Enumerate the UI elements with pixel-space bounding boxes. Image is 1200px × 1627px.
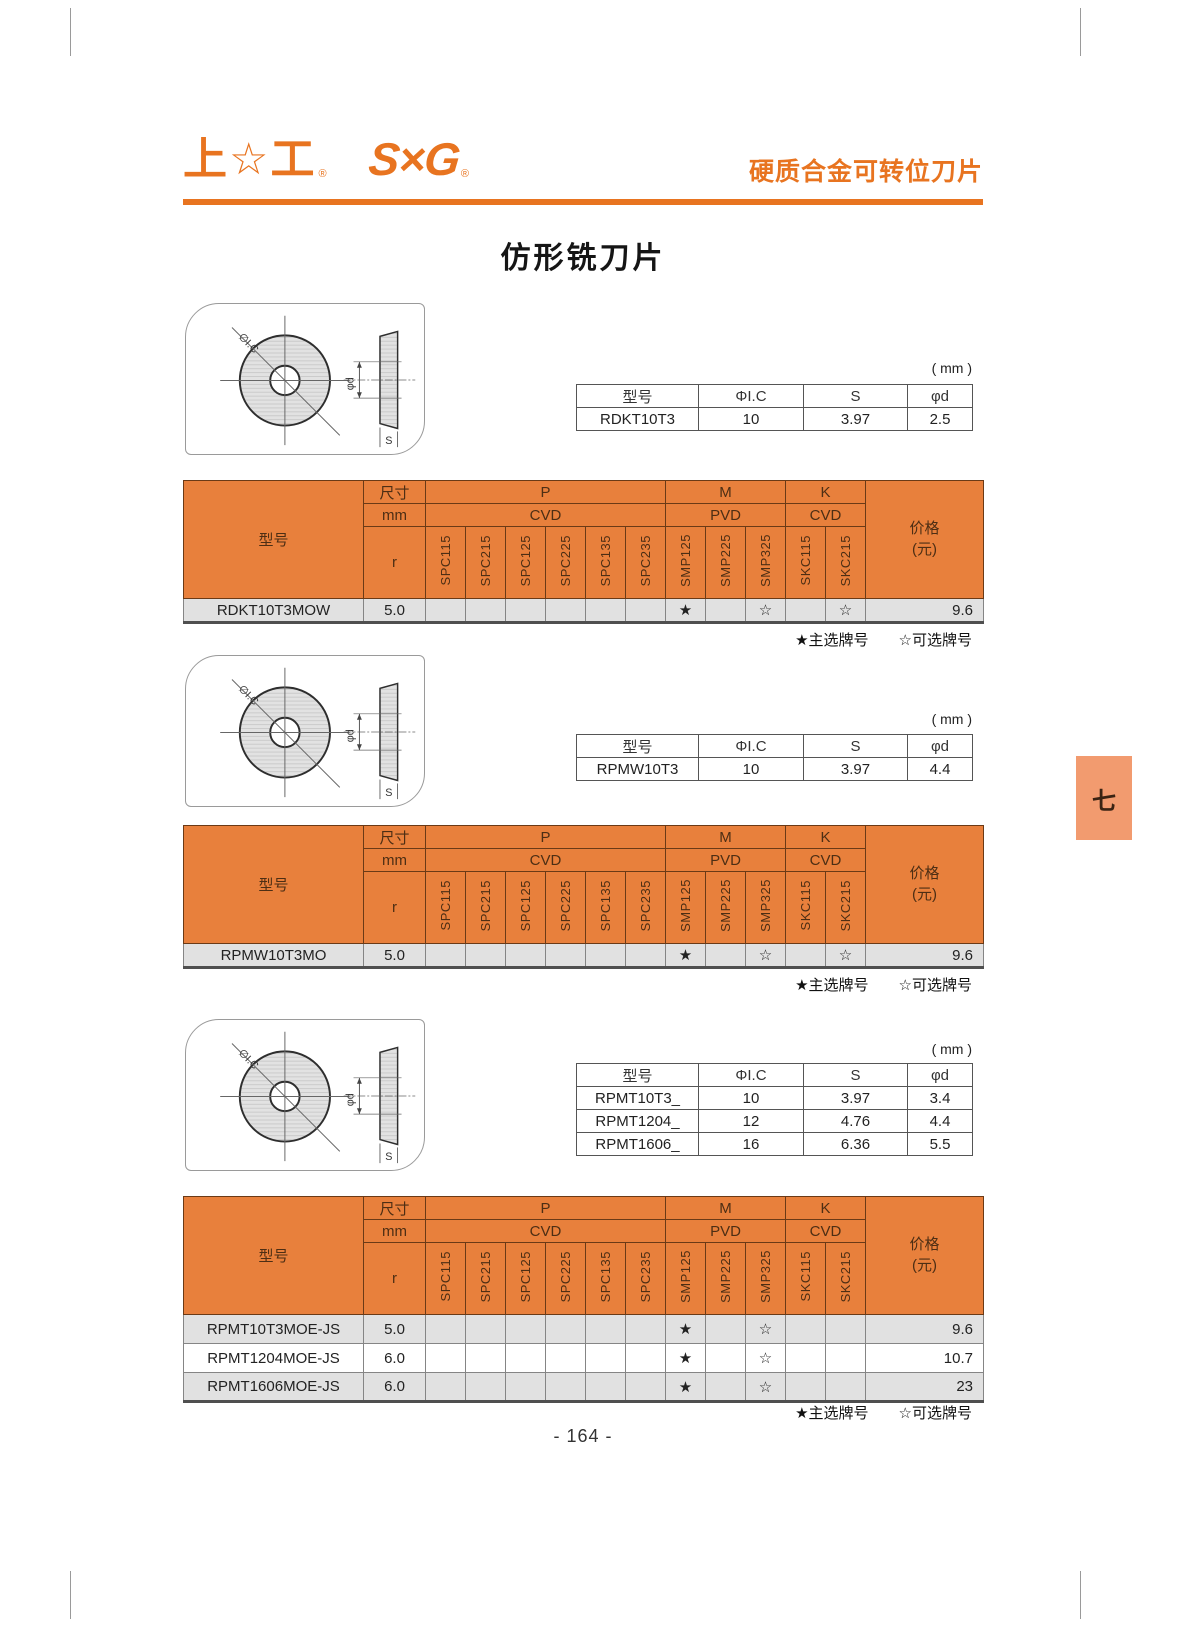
grade-label: SPC225 — [558, 1251, 573, 1302]
col-price-header: 价格 (元) — [866, 826, 984, 944]
price-cell: 10.7 — [866, 1344, 984, 1373]
grade-legend: ★主选牌号☆可选牌号 — [572, 629, 972, 650]
sg-logo: S×G — [366, 136, 461, 182]
table-row: RPMW10T3MO 5.0 ★ ☆ ☆ 9.6 — [184, 944, 984, 968]
spec-col-ic: ΦI.C — [699, 1064, 804, 1087]
coating-cvd-header: CVD — [426, 849, 666, 872]
spec-row: RPMT1606_ 16 6.36 5.5 — [577, 1133, 973, 1156]
spec-col-model: 型号 — [577, 385, 699, 408]
coating-pvd-header: PVD — [666, 504, 786, 527]
grade-label: SMP325 — [758, 879, 773, 932]
catalog-page: 上☆工 ® S×G ® 硬质合金可转位刀片 仿形铣刀片 ∅I.C φd S ( — [0, 0, 1200, 1627]
coating-cvd-header: CVD — [426, 1220, 666, 1243]
model-cell: RPMT10T3MOE-JS — [184, 1315, 364, 1344]
col-price-header: 价格 (元) — [866, 481, 984, 599]
radius-header: r — [364, 1243, 426, 1315]
grade-label: SMP225 — [718, 879, 733, 932]
grade-label: SKC215 — [838, 1251, 853, 1302]
radius-cell: 5.0 — [364, 1315, 426, 1344]
size-unit-header: mm — [364, 504, 426, 527]
page-title: 仿形铣刀片 — [183, 233, 983, 277]
model-cell: RPMT1204MOE-JS — [184, 1344, 364, 1373]
table-row: RPMT1606MOE-JS 6.0 ★ ☆ 23 — [184, 1373, 984, 1402]
grade-label: SKC115 — [798, 880, 813, 930]
grade-label: SPC115 — [438, 535, 453, 585]
size-unit-header: mm — [364, 1220, 426, 1243]
legend-optional: ☆可选牌号 — [899, 977, 972, 994]
price-cell: 9.6 — [866, 944, 984, 968]
brand-logos: 上☆工 ® S×G ® — [183, 136, 469, 182]
table-row: RDKT10T3MOW 5.0 ★ ☆ ☆ 9.6 — [184, 599, 984, 623]
unit-label: ( mm ) — [780, 360, 972, 376]
grade-label: SMP225 — [718, 534, 733, 587]
spec-col-s: S — [804, 385, 908, 408]
size-unit-header: mm — [364, 849, 426, 872]
spec-col-s: S — [804, 735, 908, 758]
optional-grade-star: ☆ — [826, 599, 866, 623]
radius-cell: 6.0 — [364, 1344, 426, 1373]
grade-label: SPC215 — [478, 1251, 493, 1302]
grade-label: SPC115 — [438, 1251, 453, 1301]
price-cell: 9.6 — [866, 1315, 984, 1344]
grade-label: SMP325 — [758, 534, 773, 587]
grade-table-rpmw: 型号 尺寸 P M K 价格 (元) mm CVD PVD CVD r SPC1… — [183, 825, 984, 969]
grade-label: SMP125 — [678, 879, 693, 932]
insert-technical-drawing: ∅I.C φd S — [186, 1020, 423, 1169]
grade-label: SMP325 — [758, 1250, 773, 1303]
spec-col-ic: ΦI.C — [699, 385, 804, 408]
col-model-header: 型号 — [184, 1197, 364, 1315]
spec-col-d: φd — [908, 1064, 973, 1087]
grade-label: SKC215 — [838, 535, 853, 586]
group-p-header: P — [426, 1197, 666, 1220]
spec-col-s: S — [804, 1064, 908, 1087]
grade-table-rpmt: 型号 尺寸 P M K 价格 (元) mm CVD PVD CVD r SPC1… — [183, 1196, 984, 1403]
shanggong-logo: 上☆工 — [183, 138, 316, 182]
grade-legend: ★主选牌号☆可选牌号 — [572, 1402, 972, 1423]
optional-grade-star: ☆ — [746, 1373, 786, 1402]
legend-primary: ★主选牌号 — [795, 1405, 868, 1422]
spec-col-model: 型号 — [577, 735, 699, 758]
registered-mark-icon: ® — [318, 169, 326, 180]
group-k-header: K — [786, 826, 866, 849]
coating-cvd-header: CVD — [786, 1220, 866, 1243]
col-model-header: 型号 — [184, 481, 364, 599]
col-model-header: 型号 — [184, 826, 364, 944]
grade-label: SPC235 — [638, 880, 653, 931]
coating-pvd-header: PVD — [666, 1220, 786, 1243]
optional-grade-star: ☆ — [826, 944, 866, 968]
group-m-header: M — [666, 826, 786, 849]
insert-drawing-rpmw: ∅I.C φd S — [185, 655, 425, 807]
grade-legend: ★主选牌号☆可选牌号 — [572, 974, 972, 995]
crop-mark-top-right — [1080, 8, 1081, 56]
legend-primary: ★主选牌号 — [795, 977, 868, 994]
grade-label: SPC135 — [598, 880, 613, 931]
spec-row: RDKT10T3 10 3.97 2.5 — [577, 408, 973, 431]
group-m-header: M — [666, 481, 786, 504]
model-cell: RDKT10T3MOW — [184, 599, 364, 623]
spec-col-model: 型号 — [577, 1064, 699, 1087]
col-size-header: 尺寸 — [364, 1197, 426, 1220]
insert-technical-drawing: ∅I.C φd S — [186, 656, 423, 805]
grade-label: SPC115 — [438, 880, 453, 930]
spec-row: RPMT1204_ 12 4.76 4.4 — [577, 1110, 973, 1133]
coating-cvd-header: CVD — [426, 504, 666, 527]
grade-label: SKC115 — [798, 535, 813, 585]
model-cell: RPMW10T3MO — [184, 944, 364, 968]
grade-label: SPC135 — [598, 1251, 613, 1302]
group-m-header: M — [666, 1197, 786, 1220]
grade-label: SPC235 — [638, 1251, 653, 1302]
radius-cell: 6.0 — [364, 1373, 426, 1402]
insert-technical-drawing: ∅I.C φd S — [186, 304, 423, 453]
radius-cell: 5.0 — [364, 599, 426, 623]
radius-header: r — [364, 872, 426, 944]
optional-grade-star: ☆ — [746, 1344, 786, 1373]
grade-label: SMP125 — [678, 1250, 693, 1303]
grade-label: SPC125 — [518, 880, 533, 931]
grade-label: SPC135 — [598, 535, 613, 586]
grade-label: SPC225 — [558, 535, 573, 586]
coating-cvd-header: CVD — [786, 504, 866, 527]
radius-cell: 5.0 — [364, 944, 426, 968]
primary-grade-star: ★ — [666, 1373, 706, 1402]
optional-grade-star: ☆ — [746, 1315, 786, 1344]
primary-grade-star: ★ — [666, 1315, 706, 1344]
coating-pvd-header: PVD — [666, 849, 786, 872]
crop-mark-bottom-left — [70, 1571, 71, 1619]
spec-table-rpmw: 型号 ΦI.C S φd RPMW10T3 10 3.97 4.4 — [576, 734, 973, 781]
group-k-header: K — [786, 481, 866, 504]
col-size-header: 尺寸 — [364, 826, 426, 849]
grade-label: SPC235 — [638, 535, 653, 586]
price-cell: 9.6 — [866, 599, 984, 623]
header-divider — [183, 199, 983, 205]
grade-label: SMP125 — [678, 534, 693, 587]
price-cell: 23 — [866, 1373, 984, 1402]
spec-col-ic: ΦI.C — [699, 735, 804, 758]
catalog-section-title: 硬质合金可转位刀片 — [749, 152, 983, 188]
legend-optional: ☆可选牌号 — [899, 632, 972, 649]
thickness-s-label: S — [385, 787, 392, 799]
model-cell: RPMT1606MOE-JS — [184, 1373, 364, 1402]
group-p-header: P — [426, 481, 666, 504]
spec-row: RPMT10T3_ 10 3.97 3.4 — [577, 1087, 973, 1110]
grade-label: SKC215 — [838, 880, 853, 931]
coating-cvd-header: CVD — [786, 849, 866, 872]
primary-grade-star: ★ — [666, 599, 706, 623]
primary-grade-star: ★ — [666, 1344, 706, 1373]
unit-label: ( mm ) — [780, 711, 972, 727]
optional-grade-star: ☆ — [746, 599, 786, 623]
group-p-header: P — [426, 826, 666, 849]
spec-col-d: φd — [908, 735, 973, 758]
grade-label: SPC225 — [558, 880, 573, 931]
chapter-tab-seven: 七 — [1076, 756, 1132, 840]
crop-mark-bottom-right — [1080, 1571, 1081, 1619]
grade-label: SMP225 — [718, 1250, 733, 1303]
unit-label: ( mm ) — [780, 1041, 972, 1057]
legend-optional: ☆可选牌号 — [899, 1405, 972, 1422]
table-row: RPMT10T3MOE-JS 5.0 ★ ☆ 9.6 — [184, 1315, 984, 1344]
spec-col-d: φd — [908, 385, 973, 408]
legend-primary: ★主选牌号 — [795, 632, 868, 649]
spec-row: RPMW10T3 10 3.97 4.4 — [577, 758, 973, 781]
table-row: RPMT1204MOE-JS 6.0 ★ ☆ 10.7 — [184, 1344, 984, 1373]
grade-label: SKC115 — [798, 1251, 813, 1301]
optional-grade-star: ☆ — [746, 944, 786, 968]
page-number: - 164 - — [183, 1426, 983, 1447]
insert-drawing-rpmt: ∅I.C φd S — [185, 1019, 425, 1171]
insert-drawing-rdkt: ∅I.C φd S — [185, 303, 425, 455]
primary-grade-star: ★ — [666, 944, 706, 968]
spec-table-rpmt: 型号 ΦI.C S φd RPMT10T3_ 10 3.97 3.4 RPMT1… — [576, 1063, 973, 1156]
group-k-header: K — [786, 1197, 866, 1220]
diameter-d-label: φd — [345, 1093, 357, 1106]
grade-label: SPC125 — [518, 535, 533, 586]
grade-label: SPC215 — [478, 880, 493, 931]
thickness-s-label: S — [385, 1151, 392, 1163]
registered-mark-icon: ® — [461, 169, 469, 180]
col-size-header: 尺寸 — [364, 481, 426, 504]
diameter-d-label: φd — [345, 729, 357, 742]
radius-header: r — [364, 527, 426, 599]
thickness-s-label: S — [385, 435, 392, 447]
grade-table-rdkt: 型号 尺寸 P M K 价格 (元) mm CVD PVD CVD r SPC1… — [183, 480, 984, 624]
grade-label: SPC125 — [518, 1251, 533, 1302]
crop-mark-top-left — [70, 8, 71, 56]
spec-table-rdkt: 型号 ΦI.C S φd RDKT10T3 10 3.97 2.5 — [576, 384, 973, 431]
diameter-d-label: φd — [345, 377, 357, 390]
grade-label: SPC215 — [478, 535, 493, 586]
col-price-header: 价格 (元) — [866, 1197, 984, 1315]
